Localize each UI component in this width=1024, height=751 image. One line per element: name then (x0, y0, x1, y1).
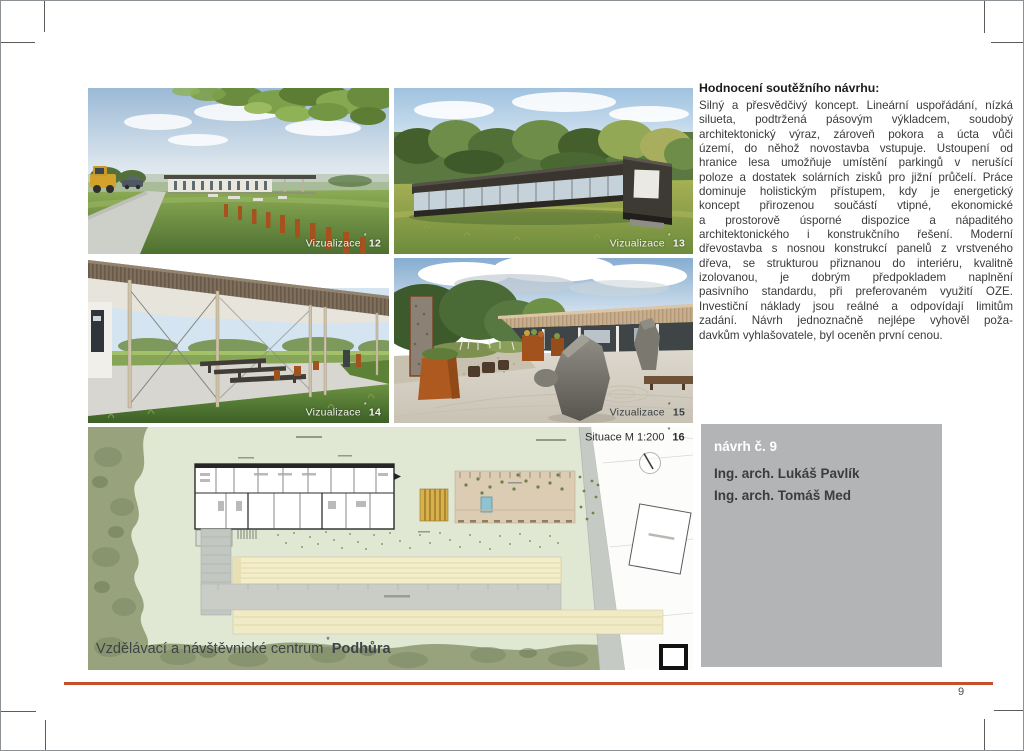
figure-caption-13: Vizualizace*13 (610, 235, 685, 250)
star-glyph: * (668, 427, 671, 434)
figure-visualization-12: Vizualizace*12 (88, 88, 389, 254)
figure-site-plan: Situace M 1:200*16 Vzdělávací a návštěvn… (88, 427, 693, 670)
star-glyph: * (326, 635, 330, 645)
page-number: 9 (949, 686, 973, 698)
star-glyph: * (668, 400, 671, 409)
evaluation-line: izolovanou, je dobrým předpokladem napln… (699, 271, 1013, 285)
brochure-page: Vizualizace*12 (0, 0, 1024, 751)
site-plan-image (88, 427, 693, 670)
visualization-12-image (88, 88, 389, 254)
crop-mark (45, 720, 46, 751)
crop-mark (991, 42, 1024, 43)
crop-mark (1, 711, 36, 712)
entry-authors: Ing. arch. Lukáš PavlíkIng. arch. Tomáš … (714, 463, 932, 507)
crop-mark (994, 710, 1024, 711)
entry-author: Ing. arch. Lukáš Pavlík (714, 463, 932, 485)
evaluation-line: hranice lesa umožňuje umístění parkingů … (699, 156, 1013, 170)
evaluation-line: zadání. Návrh jednoznačně nejlépe vyhově… (699, 314, 1013, 328)
evaluation-line: dřeva, se strukturou přiznanou do interi… (699, 257, 1013, 271)
evaluation-line: a prostorově úsporné dispozice a nápadit… (699, 214, 1013, 228)
figure-visualization-13: Vizualizace*13 (394, 88, 693, 254)
evaluation-column: Hodnocení soutěžního návrhu: Silný a pře… (699, 81, 1013, 343)
evaluation-line: architektonický výraz, zároveň pokora a … (699, 128, 1013, 142)
site-plan-caption: Situace M 1:200*16 (585, 429, 685, 444)
evaluation-line: koncept přirozenou součástí vtipné, ekon… (699, 199, 1013, 213)
crop-mark (984, 1, 985, 33)
evaluation-line: silueta, podtržená pásovým výkladcem, so… (699, 113, 1013, 127)
evaluation-line: poloze a dostatek solárních zisků pro ji… (699, 171, 1013, 185)
figure-caption-14: Vizualizace*14 (306, 404, 381, 419)
evaluation-line: architektonického i konstrukčního řešení… (699, 228, 1013, 242)
entry-author: Ing. arch. Tomáš Med (714, 485, 932, 507)
crop-mark (984, 719, 985, 751)
entry-number: návrh č. 9 (714, 439, 932, 454)
visualization-14-image (88, 258, 389, 423)
figure-caption-15: Vizualizace*15 (610, 404, 685, 419)
star-glyph: * (364, 400, 367, 409)
evaluation-line: Investiční náklady jsou reálné a odpovíd… (699, 300, 1013, 314)
figure-caption-12: Vizualizace*12 (306, 235, 381, 250)
entry-info-panel: návrh č. 9 Ing. arch. Lukáš PavlíkIng. a… (701, 424, 942, 667)
evaluation-body: Silný a přesvědčivý koncept. Lineární us… (699, 99, 1013, 343)
evaluation-line: pasivního standardu, při preferovaném vy… (699, 285, 1013, 299)
evaluation-line: území, do něhož novostavba vstupuje. Ust… (699, 142, 1013, 156)
evaluation-line: dominuje holistickým přístupem, kdy je e… (699, 185, 1013, 199)
figure-visualization-15: Vizualizace*15 (394, 258, 693, 423)
star-glyph: * (364, 231, 367, 240)
evaluation-line: davkům vyhlašovatele, byl oceněn první c… (699, 329, 1013, 343)
visualization-15-image (394, 258, 693, 423)
crop-mark (1, 42, 35, 43)
figure-visualization-14: Vizualizace*14 (88, 258, 389, 423)
project-title-caption: Vzdělávací a návštěvnické centrum*Podhůr… (96, 639, 391, 657)
footer-accent-rule (64, 682, 993, 685)
evaluation-line: dřevostavba s nosnou konstrukcí panelů z… (699, 242, 1013, 256)
evaluation-heading: Hodnocení soutěžního návrhu: (699, 81, 1013, 95)
star-glyph: * (668, 231, 671, 240)
visualization-13-image (394, 88, 693, 254)
evaluation-line: Silný a přesvědčivý koncept. Lineární us… (699, 99, 1013, 113)
crop-mark (44, 1, 45, 32)
